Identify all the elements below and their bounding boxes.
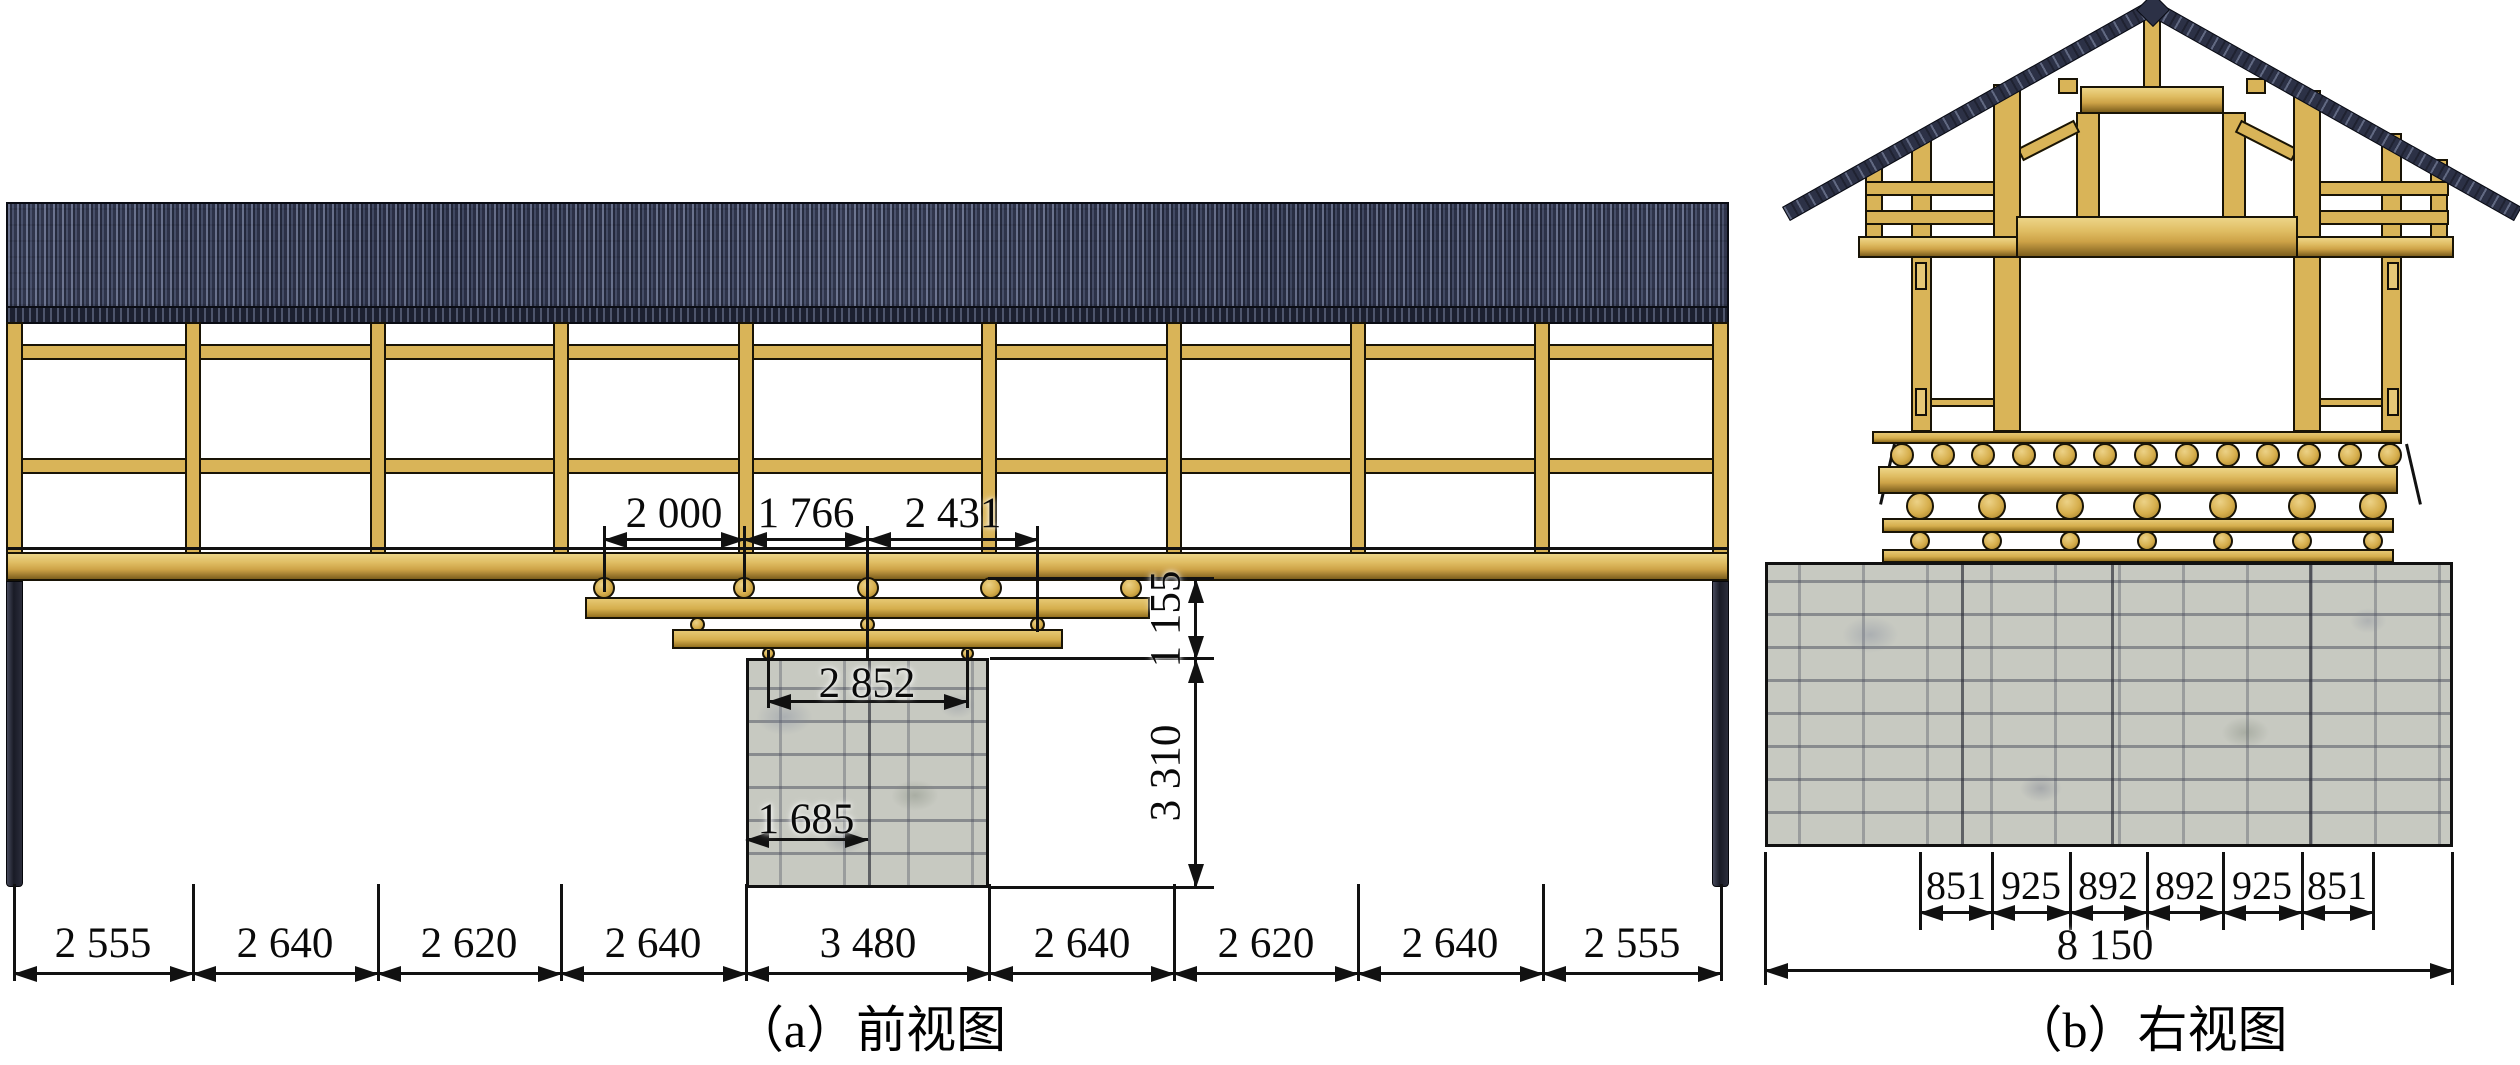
crib-log [2060,531,2080,551]
dim-label: 892 [2078,866,2138,906]
dim-line [2070,911,2147,914]
side-rail [1865,210,1995,225]
dim-line [746,972,990,975]
crib-log [2292,531,2312,551]
front-roof-eave-fringe [8,306,1727,322]
crib-log [2359,492,2387,520]
dim-line [990,972,1174,975]
dim-line [2147,911,2223,914]
eave-beam [2296,236,2454,258]
crib-log [1978,492,2006,520]
dim-line [1765,969,2453,972]
crib-log [2133,492,2161,520]
wall-post [738,322,754,554]
front-roof-band [6,202,1729,324]
crib-log [1910,531,1930,551]
collar-stub [2246,78,2266,94]
collar-beam [2080,86,2224,114]
dim-line [1992,911,2070,914]
dim-label: 2 620 [1218,922,1315,965]
dim-label: 851 [2307,866,2367,906]
crib-log [2363,531,2383,551]
right-end-post [1712,581,1729,887]
crib-log [2378,443,2402,467]
dim-label: 2 640 [1402,922,1499,965]
wall-post [6,322,23,554]
dim-label: 925 [2001,866,2061,906]
dim-line [604,538,744,541]
dim-label: 2 620 [421,922,518,965]
dim-label: 2 640 [605,922,702,965]
front-view-caption: （a）前视图 [734,1005,1006,1055]
dim-label-vertical: 1 155 [1145,571,1188,668]
dim-label: 2 640 [237,922,334,965]
abutment-joint [1961,565,1964,844]
crib-log [1971,443,1995,467]
crib-log [2209,492,2237,520]
wall-post [185,322,201,554]
dim-label: 2 852 [819,662,916,705]
tenon-slot [1915,388,1927,416]
floor-rail [2319,398,2383,407]
crib-log [2297,443,2321,467]
dim-line [1358,972,1543,975]
collar-stub [2058,78,2078,94]
dim-label: 8 150 [2057,924,2154,967]
dim-line [193,972,378,975]
dim-line [744,538,868,541]
crib-log [2012,443,2036,467]
tenon-slot [2387,262,2399,290]
crib-log [2216,443,2240,467]
queen-post [2076,112,2100,218]
dim-line [561,972,746,975]
dim-label: 2 431 [905,492,1002,535]
corbel-log [1120,577,1142,599]
crib-log [1890,443,1914,467]
dim-label-vertical: 3 310 [1145,725,1188,822]
abutment-joint [2111,565,2114,844]
crib-log [2175,443,2199,467]
wall-post [1350,322,1366,554]
crib-log [2288,492,2316,520]
dim-label: 3 480 [820,922,917,965]
crib-log [1931,443,1955,467]
dim-label: 1 685 [758,798,855,841]
dim-label: 2 555 [1584,922,1681,965]
roof-brace [2017,120,2080,162]
floor-plate [1872,431,2402,444]
tenon-slot [2387,388,2399,416]
wall-post [370,322,386,554]
wall-post [1166,322,1182,554]
dim-label: 892 [2155,866,2215,906]
wall-post [1534,322,1550,554]
crib-sill [1882,549,2394,563]
crib-log [2338,443,2362,467]
dim-line [868,538,1038,541]
dim-line [14,972,193,975]
dim-line [378,972,561,975]
wall-rail-lower [6,458,1729,474]
side-rail [2319,210,2449,225]
wall-post [1712,322,1729,554]
side-rail [1865,181,1995,196]
stone-abutment [1765,562,2453,847]
splash-board [2405,444,2422,505]
dim-label: 2 640 [1034,922,1131,965]
dim-label: 851 [1926,866,1986,906]
eave-beam [1858,236,2018,258]
dim-line [2302,911,2373,914]
abutment-joint [2309,565,2312,844]
dim-line [1543,972,1721,975]
crib-log [2134,443,2158,467]
figure-canvas: 2 000 1 766 2 431 2 852 1 685 1 155 3 31… [0,0,2520,1065]
tenon-slot [1915,262,1927,290]
crib-log [1982,531,2002,551]
crib-log [2093,443,2117,467]
dim-line-vertical [1194,660,1197,887]
side-rail [2319,181,2449,196]
dim-line [1174,972,1358,975]
wall-rail-upper [6,344,1729,360]
dim-line [2223,911,2302,914]
dim-label: 2 000 [626,492,723,535]
floor-rail [1930,398,1995,407]
crib-log [2056,492,2084,520]
crib-log [1906,492,1934,520]
crib-beam-middle [1882,518,2394,533]
inner-column [2293,90,2321,432]
crib-log [2053,443,2077,467]
dim-label: 925 [2232,866,2292,906]
wall-post [553,322,569,554]
inner-column [1993,84,2021,432]
crib-log [2213,531,2233,551]
crib-log [2137,531,2157,551]
crib-beam-upper [1878,466,2398,494]
right-view-caption: （b）右视图 [2013,1005,2288,1055]
dim-line-vertical [1194,580,1197,659]
corbel-log [980,577,1002,599]
dim-label: 1 766 [758,492,855,535]
main-tie-beam [2016,216,2298,258]
dim-reference [990,886,1214,889]
left-end-post [6,581,23,887]
crib-log [2256,443,2280,467]
dim-label: 2 555 [55,922,152,965]
dim-line [1920,911,1992,914]
